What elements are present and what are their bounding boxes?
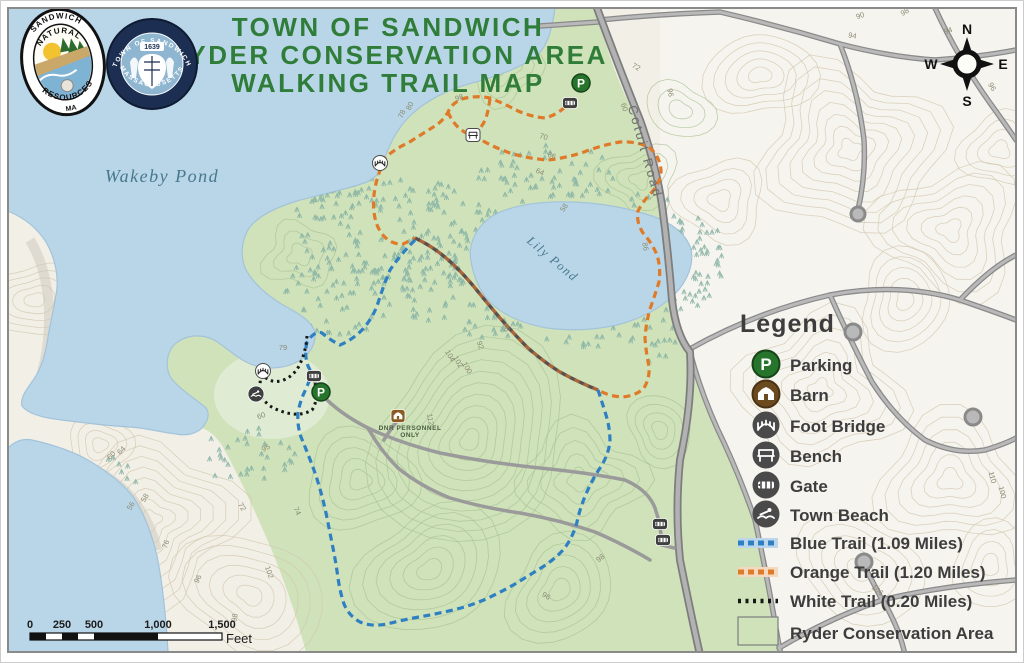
trail-map-page: P P Wakeby Pond Lily Pond Cotuit Road DN… [0,0,1024,663]
foot-bridge-icon [256,364,271,379]
legend-conservation-area-label: Ryder Conservation Area [790,624,994,643]
svg-text:P: P [577,77,585,91]
svg-text:P: P [760,355,771,374]
map-title: TOWN OF SANDWICH RYDER CONSERVATION AREA… [168,12,608,98]
parking-icon: P [572,74,590,92]
dnr-personnel-label: DNR PERSONNEL [379,425,442,432]
svg-text:P: P [317,386,325,400]
gate-icon [656,535,671,546]
dnr-only-label: ONLY [400,432,420,439]
compass-n: N [962,21,972,37]
wakeby-pond-label: Wakeby Pond [105,166,219,186]
compass-s: S [962,93,971,109]
gate-icon [653,519,668,530]
gate-icon [563,98,578,109]
legend-barn-icon [753,381,780,408]
compass-e: E [998,56,1007,72]
contour-elevation-label: 79 [279,343,287,352]
legend-barn-label: Barn [790,386,829,405]
title-line-2: RYDER CONSERVATION AREA [168,40,608,70]
contour-elevation-label: 86 [640,242,650,252]
svg-text:250: 250 [53,619,71,631]
foot-bridge-icon [373,156,388,171]
legend-white-trail-label: White Trail (0.20 Miles) [790,592,972,611]
barn-icon [391,410,405,423]
compass-w: W [924,56,938,72]
contour-elevation-label: 94 [848,30,858,40]
legend-gate-icon [753,472,780,499]
gate-icon [307,371,322,382]
legend-title: Legend [740,310,835,338]
title-line-3: WALKING TRAIL MAP [231,68,545,98]
trail-map-canvas: P P Wakeby Pond Lily Pond Cotuit Road DN… [0,0,1024,663]
legend-bench-label: Bench [790,447,842,466]
scale-unit-label: Feet [226,631,252,646]
town-beach-icon [248,386,264,402]
legend-bench-icon [753,442,780,469]
legend-foot-bridge-icon [753,412,780,439]
svg-text:1,000: 1,000 [144,619,172,631]
svg-text:0: 0 [27,619,33,631]
svg-text:500: 500 [85,619,103,631]
parking-icon: P [312,383,330,401]
contour-elevation-label: 96 [665,88,675,98]
title-line-1: TOWN OF SANDWICH [232,12,545,42]
town-seal-logo: TOWN OF SANDWICH MASSACHUSETTS 1639 [107,19,197,109]
legend-parking-label: Parking [790,356,852,375]
bench-icon [466,129,480,142]
legend-blue-trail-label: Blue Trail (1.09 Miles) [790,534,963,553]
legend-town-beach-label: Town Beach [790,506,889,525]
legend-gate-label: Gate [790,477,828,496]
legend-parking-icon: P [753,351,780,378]
legend-foot-bridge-label: Foot Bridge [790,417,885,436]
legend-orange-trail-label: Orange Trail (1.20 Miles) [790,563,986,582]
svg-text:1639: 1639 [144,44,160,51]
legend-town-beach-icon [753,501,780,528]
legend-conservation-area-swatch [738,617,778,645]
svg-text:1,500: 1,500 [208,619,236,631]
